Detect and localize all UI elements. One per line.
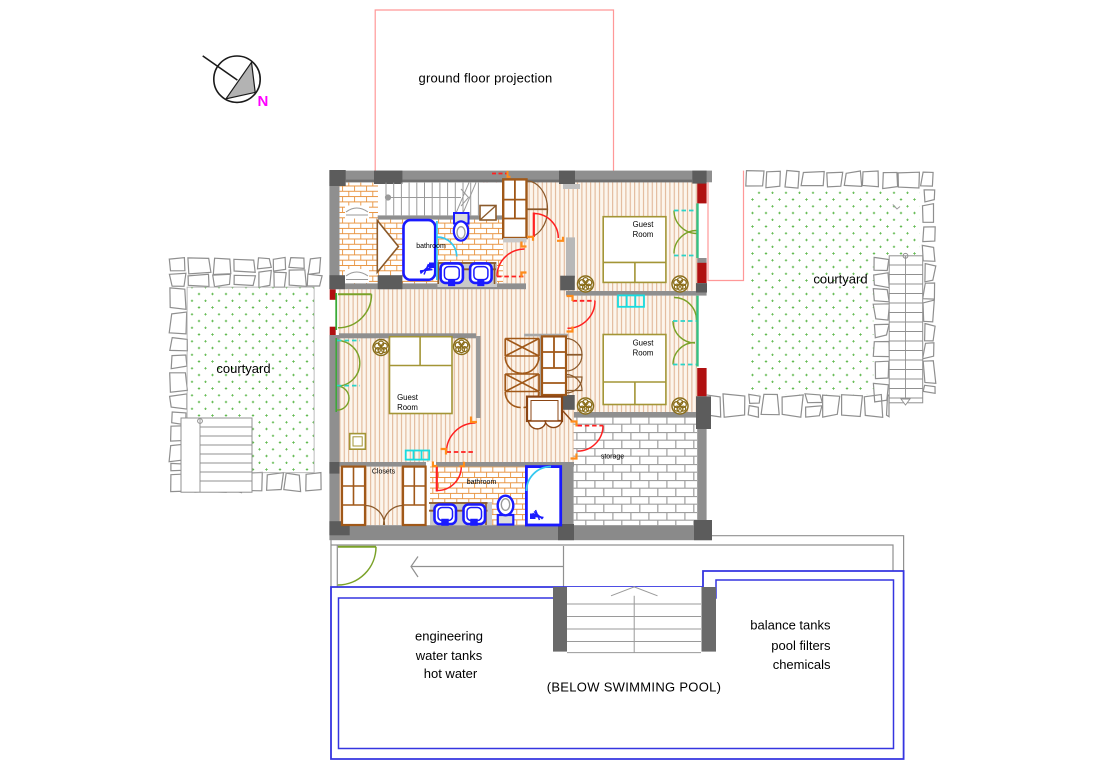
svg-text:bathroom: bathroom [416, 243, 446, 250]
svg-text:storage: storage [601, 454, 624, 461]
svg-text:N: N [258, 93, 269, 110]
svg-text:(BELOW SWIMMING POOL): (BELOW SWIMMING POOL) [547, 680, 722, 695]
svg-text:bathroom: bathroom [467, 479, 497, 486]
svg-text:courtyard: courtyard [216, 361, 270, 376]
svg-text:ground floor projection: ground floor projection [419, 71, 553, 86]
svg-text:Room: Room [633, 348, 654, 357]
svg-text:Room: Room [397, 403, 418, 412]
svg-text:Closets: Closets [372, 469, 396, 476]
svg-text:Guest: Guest [633, 220, 655, 229]
svg-text:Guest: Guest [397, 393, 419, 402]
svg-text:balance tanks: balance tanks [750, 618, 831, 633]
svg-text:Guest: Guest [633, 339, 655, 348]
svg-text:Room: Room [633, 230, 654, 239]
svg-text:chemicals: chemicals [773, 657, 831, 672]
svg-text:pool filters: pool filters [771, 638, 831, 653]
svg-text:hot water: hot water [424, 666, 478, 681]
svg-text:engineering: engineering [415, 629, 483, 644]
svg-text:water tanks: water tanks [415, 648, 483, 663]
svg-text:courtyard: courtyard [813, 272, 867, 287]
